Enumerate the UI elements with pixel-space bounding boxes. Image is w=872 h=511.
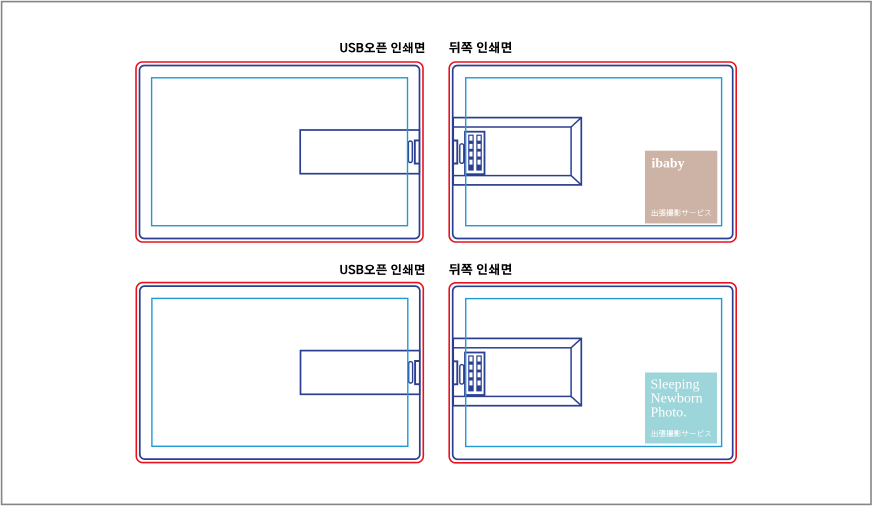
svg-text:Sleeping: Sleeping [651,378,700,393]
svg-text:Newborn: Newborn [651,392,703,407]
svg-text:ibaby: ibaby [652,156,685,171]
svg-text:Photo.: Photo. [651,406,687,421]
